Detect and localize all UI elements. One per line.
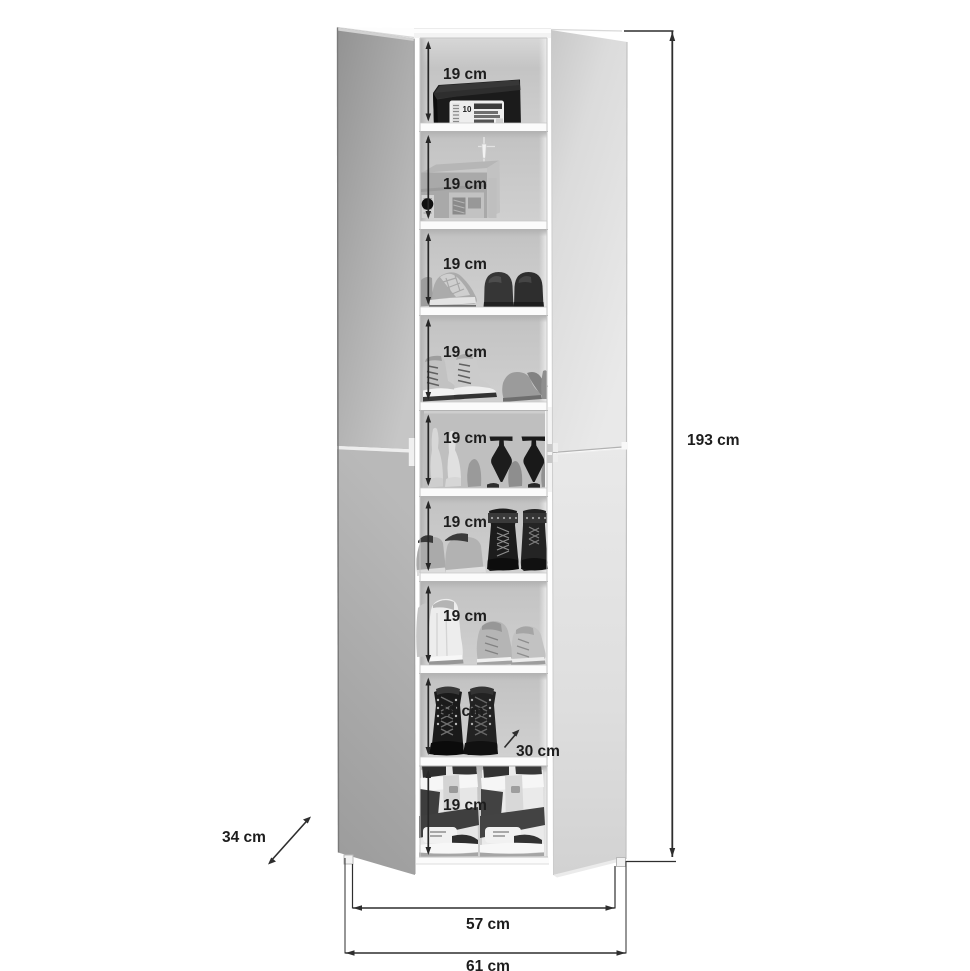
svg-text:10: 10 <box>463 105 472 114</box>
svg-text:34 cm: 34 cm <box>222 829 266 846</box>
svg-text:19 cm: 19 cm <box>443 430 487 447</box>
svg-text:19 cm: 19 cm <box>443 344 487 361</box>
svg-text:19 cm: 19 cm <box>440 703 484 720</box>
svg-text:19 cm: 19 cm <box>443 66 487 83</box>
svg-text:193 cm: 193 cm <box>687 432 740 449</box>
svg-text:19 cm: 19 cm <box>443 797 487 814</box>
svg-text:57 cm: 57 cm <box>466 916 510 933</box>
svg-text:19 cm: 19 cm <box>443 514 487 531</box>
svg-text:19 cm: 19 cm <box>443 256 487 273</box>
svg-text:30 cm: 30 cm <box>516 743 560 760</box>
svg-text:19 cm: 19 cm <box>443 608 487 625</box>
svg-text:61 cm: 61 cm <box>466 958 510 971</box>
svg-text:19 cm: 19 cm <box>443 176 487 193</box>
